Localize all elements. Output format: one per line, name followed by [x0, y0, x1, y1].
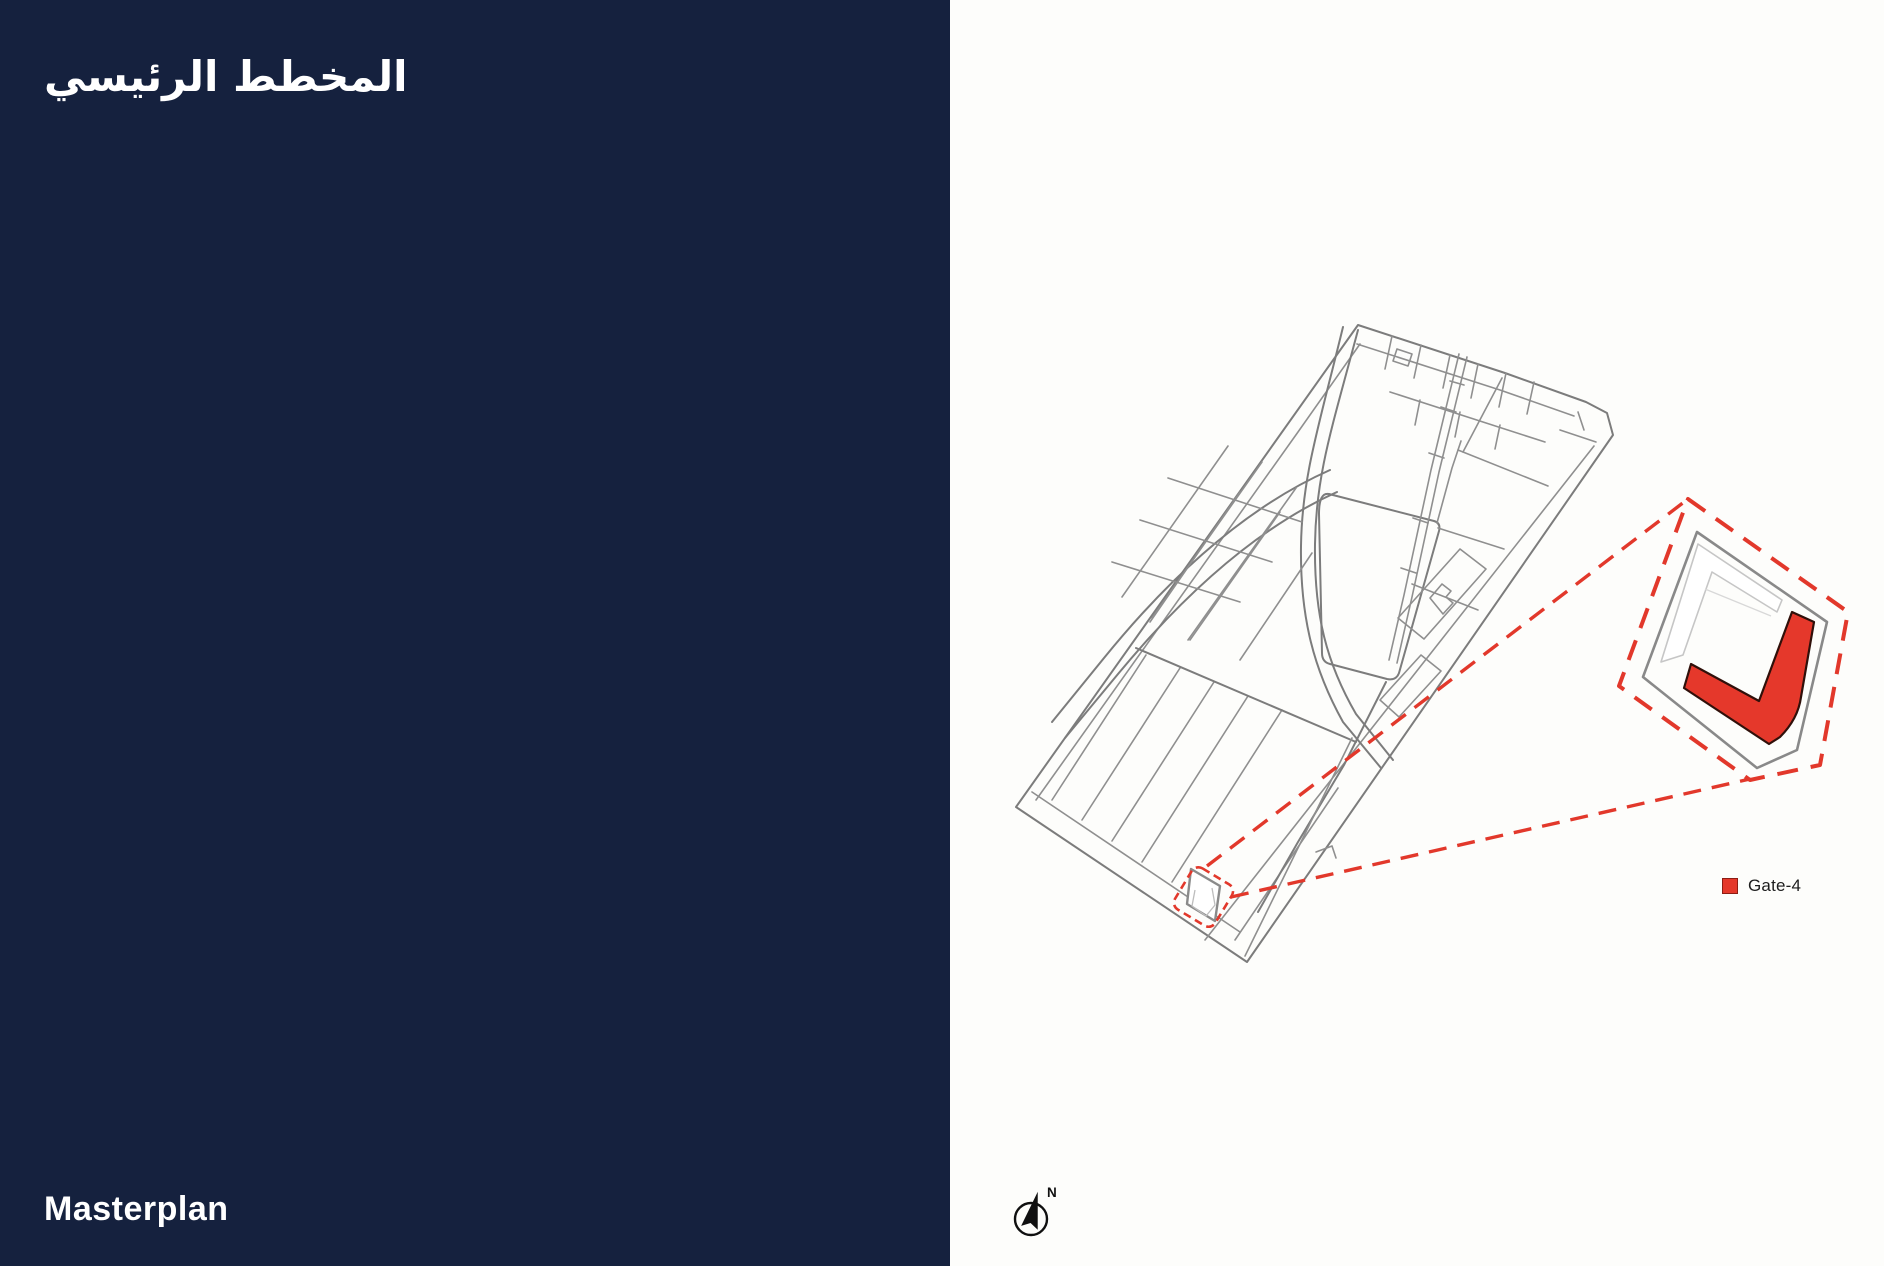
masterplan-drawing: N	[0, 0, 1884, 1266]
masterplan-map	[1016, 325, 1613, 962]
compass-needle-icon	[1021, 1190, 1046, 1230]
legend-red-swatch-icon	[1722, 878, 1738, 894]
legend: Gate-4	[1722, 876, 1801, 896]
gate4-plot-highlight	[1171, 864, 1236, 929]
north-compass: N	[1015, 1185, 1057, 1235]
compass-north-label: N	[1047, 1185, 1057, 1200]
slide: المخطط الرئيسي Masterplan	[0, 0, 1884, 1266]
gate4-detail	[1619, 499, 1848, 780]
legend-label: Gate-4	[1748, 876, 1801, 896]
site-boundary	[1016, 325, 1613, 962]
